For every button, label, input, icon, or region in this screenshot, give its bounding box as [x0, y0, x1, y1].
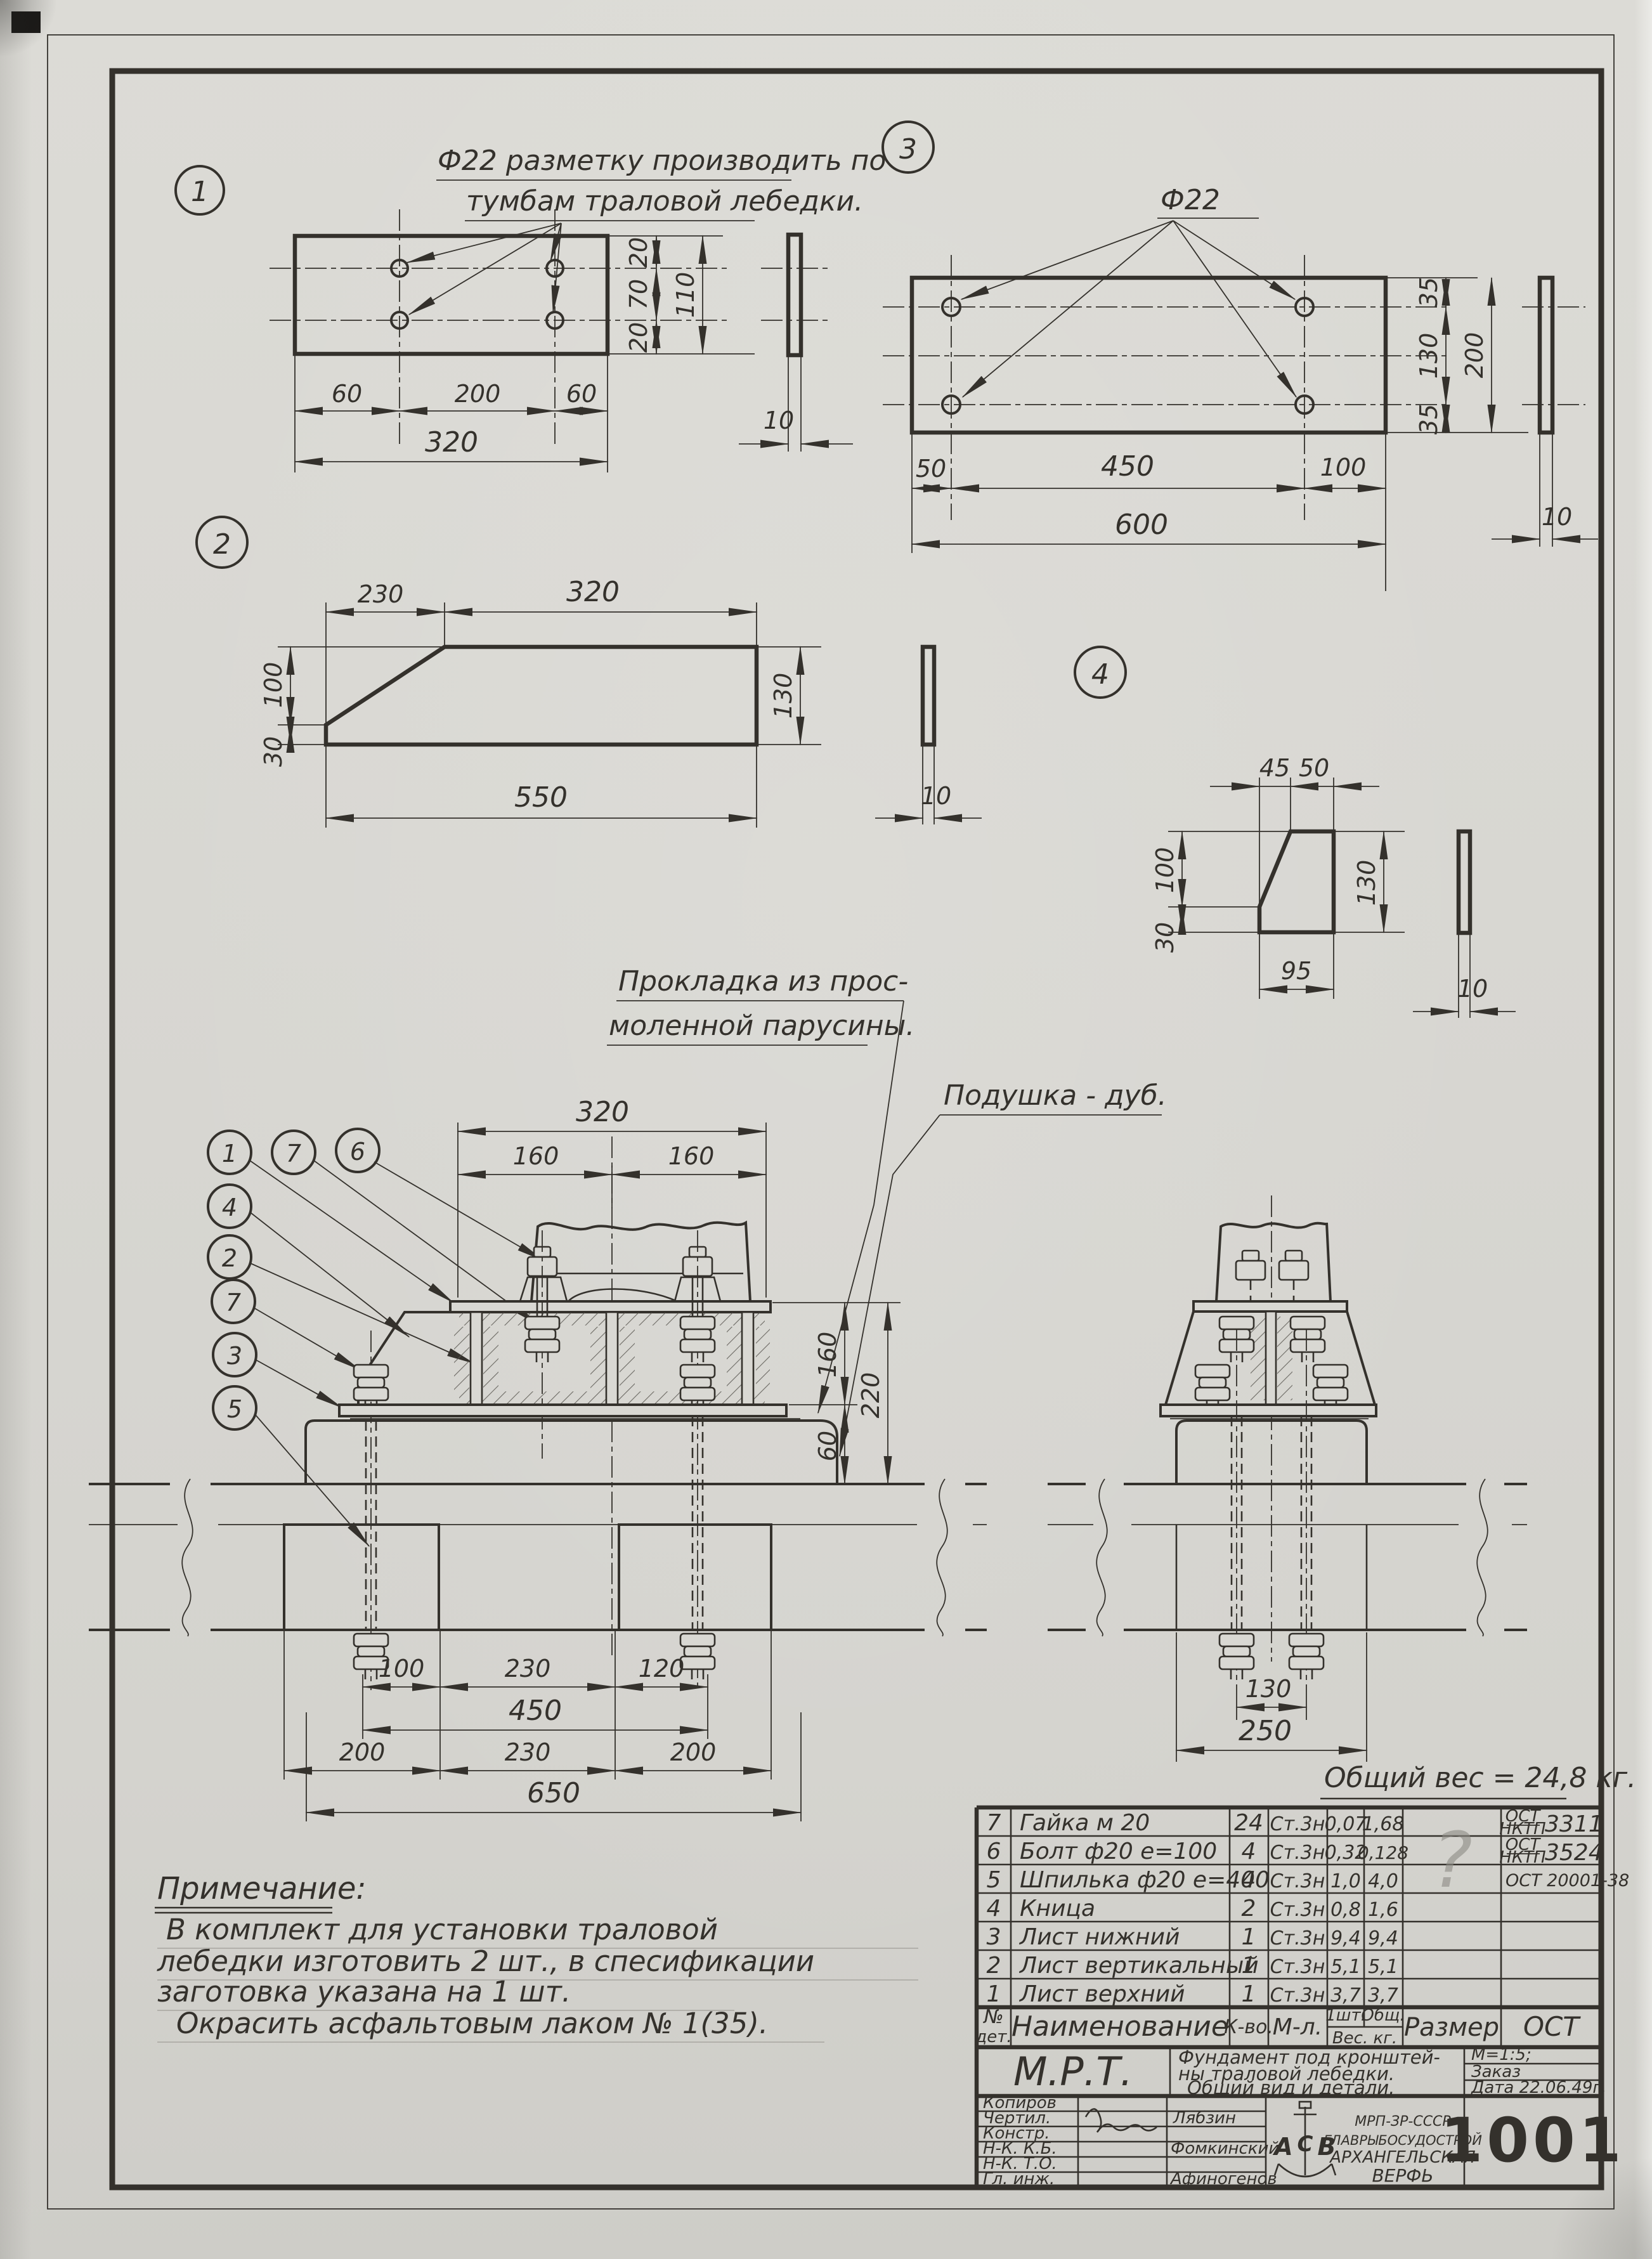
emblem-letter-s: С: [1298, 2132, 1313, 2157]
balloon-1: 1: [222, 1140, 237, 1168]
drawing-canvas: 1 Ф22 разметку производить по тумбам тра…: [0, 0, 1652, 2259]
cell-qty: 2: [1242, 1896, 1256, 1922]
dim-d2-t1: 230: [358, 580, 404, 608]
cell-w1: 5,1: [1330, 1956, 1361, 1978]
oak-cushion: [306, 1421, 837, 1484]
break-line-left: [182, 1479, 193, 1636]
dim-d1-total: 320: [425, 426, 478, 459]
cell-wt: 1,6: [1368, 1899, 1398, 1921]
cell-ost-single: ОСТ 20001-38: [1506, 1871, 1629, 1891]
side-deck: [1048, 1479, 1527, 1636]
table-row: 1 Лист верхний 1 Ст.3н 3,7 3,7: [987, 1981, 1398, 2007]
cushion-label-text: Подушка - дуб.: [944, 1079, 1167, 1112]
sig-name-chief: Афиногенов: [1169, 2170, 1277, 2189]
blueprint-sheet: 1 Ф22 разметку производить по тумбам тра…: [0, 0, 1652, 2259]
cell-wt: 1,68: [1362, 1813, 1405, 1835]
dim-d4-t2: 50: [1299, 754, 1329, 782]
dim-d4-l2: 30: [1151, 922, 1179, 953]
cell-no: 7: [987, 1810, 1001, 1836]
dim-d2-thk: 10: [921, 782, 951, 810]
dim-mv-r1a: 100: [379, 1655, 425, 1683]
dim-d2-r: 130: [769, 673, 797, 719]
notes-line2: лебедки изготовить 2 шт., в спесификации: [157, 1944, 814, 1978]
dim-mv-60: 60: [814, 1431, 842, 1461]
dim-d3-b2: 450: [1101, 450, 1154, 483]
table-row: 4 Кница 2 Ст.3н 0,8 1,6: [987, 1896, 1398, 1922]
cell-mat: Ст.3н: [1270, 1813, 1325, 1835]
header-name: Наименование: [1011, 2010, 1228, 2043]
dim-d3-b1: 50: [916, 455, 946, 483]
bottom-plate: [339, 1405, 786, 1416]
cell-mat: Ст.3н: [1270, 1842, 1325, 1864]
dim-d3-thk: 10: [1542, 503, 1572, 531]
table-row: 6 Болт ф20 е=100 4 Ст.3н 0,32 0,128 ОСТ …: [987, 1835, 1603, 1867]
dim-mv-right160: 160: [668, 1142, 715, 1170]
cell-wt: 3,7: [1368, 1984, 1398, 2007]
dim-sv-130: 130: [1246, 1675, 1292, 1703]
studs-and-nuts: [354, 1230, 715, 1690]
balloon-3: 3: [227, 1342, 242, 1370]
dim-d1-v1: 20: [625, 237, 653, 268]
dim-d1-vtotal: 110: [672, 272, 699, 318]
cell-wt: 0,128: [1358, 1842, 1408, 1863]
gasket-label-line2: моленной парусины.: [609, 1010, 914, 1042]
table-row: 2 Лист вертикальный 1 Ст.3н 5,1 5,1: [987, 1953, 1398, 1979]
side-winch-foot: [1216, 1223, 1330, 1301]
detail-3-side-view: [1540, 278, 1552, 433]
header-size: Размер: [1404, 2013, 1499, 2042]
dim-d4-t1: 45: [1259, 754, 1290, 782]
balloon-7a: 7: [286, 1140, 301, 1168]
dim-d3-v2: 130: [1415, 333, 1443, 379]
cell-qty: 4: [1242, 1867, 1256, 1893]
cell-name: Кница: [1020, 1896, 1095, 1922]
cell-ost-num: 3524: [1545, 1840, 1603, 1866]
drawing-title-line3: Общий вид и детали.: [1187, 2077, 1395, 2099]
dim-mv-220: 220: [857, 1372, 885, 1419]
cell-w1: 3,7: [1330, 1984, 1361, 2007]
side-web: [1251, 1312, 1292, 1405]
balloon-5: 5: [227, 1395, 242, 1423]
notes-block: Примечание: В комплект для установки тра…: [155, 1871, 918, 2042]
dim-d1-b1: 60: [332, 380, 362, 408]
cell-qty: 1: [1242, 1953, 1256, 1979]
cell-no: 5: [987, 1867, 1001, 1893]
scale-value: М=1:5;: [1471, 2045, 1532, 2064]
side-assembly-view: 130 250: [1048, 1195, 1527, 1762]
dim-d1-v2: 70: [625, 279, 653, 309]
cell-mat: Ст.3н: [1270, 1984, 1325, 2007]
dim-mv-r1b: 230: [505, 1655, 551, 1683]
side-top-plate: [1193, 1301, 1347, 1312]
dim-d1-thk: 10: [764, 407, 794, 434]
date-value: Дата 22.06.49г.: [1471, 2078, 1606, 2097]
wood-block-right: [619, 1525, 771, 1630]
detail-1-balloon-number: 1: [191, 176, 209, 208]
sig-name-drafted: Лябзин: [1173, 2109, 1236, 2128]
table-row: 7 Гайка м 20 24 Ст.3н 0,07 1,68 ОСТ НКТП…: [987, 1807, 1603, 1839]
header-w-label: Вес. кг.: [1332, 2029, 1397, 2048]
header-ost: ОСТ: [1523, 2011, 1581, 2042]
detail-1-note-line1: Ф22 разметку производить по: [438, 145, 886, 177]
detail-1-note-line2: тумбам траловой лебедки.: [466, 185, 863, 218]
detail-1-view: 1 Ф22 разметку производить по тумбам тра…: [176, 145, 886, 472]
dim-mv-r1c: 120: [639, 1655, 685, 1683]
sig-label-chief-eng: Гл. инж.: [983, 2170, 1055, 2189]
table-row: 3 Лист нижний 1 Ст.3н 9,4 9,4: [987, 1924, 1398, 1950]
sig-name-checked: Фомкинский: [1171, 2139, 1279, 2158]
dim-mv-left160: 160: [513, 1142, 559, 1170]
detail-3-balloon-number: 3: [899, 133, 917, 166]
deck-structure: [89, 1479, 987, 1636]
detail-2-plate-outline: [326, 647, 757, 745]
wood-block-left: [284, 1525, 439, 1630]
org-line1: МРП-ЗР-СССР: [1355, 2114, 1451, 2130]
cell-mat: Ст.3н: [1270, 1899, 1325, 1921]
detail-2-view: 2 230 320 100 30 130 550: [197, 517, 982, 828]
cell-mat: Ст.3н: [1270, 1927, 1325, 1950]
org-line4: ВЕРФЬ: [1372, 2165, 1433, 2186]
dim-mv-top: 320: [576, 1096, 629, 1128]
dim-d3-b3: 100: [1320, 453, 1367, 481]
dim-d4-total: 95: [1281, 957, 1311, 985]
balloon-4: 4: [222, 1194, 237, 1221]
balloon-6: 6: [350, 1138, 365, 1166]
dim-mv-r2: 450: [509, 1695, 562, 1727]
detail-2-balloon-number: 2: [213, 528, 231, 561]
table-row: 5 Шпилька ф20 е=400 4 Ст.3н 1,0 4,0 ОСТ …: [987, 1867, 1630, 1893]
photo-corner-mark: [11, 11, 41, 33]
dim-d4-r: 130: [1353, 860, 1381, 906]
series-mark: М.Р.Т.: [1013, 2048, 1133, 2095]
emblem-letter-a: А: [1272, 2133, 1292, 2161]
dim-d4-thk: 10: [1457, 975, 1488, 1003]
balloon-2: 2: [222, 1244, 237, 1272]
dim-mv-r3a: 200: [339, 1738, 386, 1766]
cell-name: Шпилька ф20 е=400: [1020, 1867, 1270, 1893]
detail-3-centerlines: [883, 255, 1585, 520]
header-qty: К-во.: [1224, 2016, 1273, 2038]
header-w-unit: 1шт.: [1325, 2006, 1366, 2025]
gasket-label-line1: Прокладка из прос-: [618, 965, 908, 998]
notes-line4: Окрасить асфальтовым лаком № 1(35).: [176, 2007, 768, 2040]
detail-3-view: 3 Ф22 50 450 100 600: [883, 122, 1598, 591]
detail-4-balloon-number: 4: [1091, 658, 1109, 691]
balloon-leaders: [250, 1161, 544, 1546]
dim-d1-b3: 60: [566, 380, 597, 408]
pencil-question-mark: ?: [1432, 1817, 1473, 1905]
copier-signature: [1086, 2109, 1157, 2132]
detail-1-plate-outline: [295, 236, 608, 354]
cell-qty: 4: [1242, 1839, 1256, 1865]
cell-wt: 4,0: [1368, 1870, 1398, 1892]
drawing-number: 1001: [1440, 2105, 1625, 2176]
cell-wt: 5,1: [1368, 1956, 1398, 1978]
notes-line1: В комплект для установки траловой: [166, 1913, 718, 1946]
cell-qty: 24: [1234, 1810, 1263, 1836]
dim-d2-total: 550: [514, 781, 568, 814]
winch-foot: [520, 1223, 750, 1301]
cell-no: 6: [987, 1839, 1001, 1865]
detail-4-view: 4 45 50 100 30 130 95: [1075, 647, 1516, 1018]
header-mat: М-л.: [1273, 2014, 1323, 2040]
cell-name: Болт ф20 е=100: [1020, 1839, 1217, 1865]
cushion-label: Подушка - дуб.: [840, 1079, 1167, 1456]
dim-sv-250: 250: [1239, 1715, 1292, 1747]
notes-heading: Примечание:: [157, 1871, 367, 1906]
side-bottom-plate: [1161, 1405, 1376, 1416]
top-plate: [450, 1301, 771, 1312]
cell-qty: 1: [1242, 1924, 1256, 1950]
dim-d1-v3: 20: [625, 322, 653, 353]
detail-3-hole-label: Ф22: [1161, 184, 1220, 216]
header-no2: дет.: [975, 2028, 1011, 2047]
balloon-7b: 7: [226, 1289, 241, 1317]
dim-d2-t2: 320: [566, 576, 620, 608]
cell-no: 2: [987, 1953, 1001, 1979]
cell-w1: 1,0: [1330, 1870, 1361, 1892]
cell-wt: 9,4: [1368, 1927, 1398, 1950]
cell-name: Лист нижний: [1018, 1924, 1180, 1950]
dim-d3-v1: 35: [1415, 277, 1443, 308]
dim-d3-v3: 35: [1415, 404, 1443, 434]
notes-line3: заготовка указана на 1 шт.: [157, 1975, 571, 2008]
cell-w1: 0,07: [1325, 1813, 1367, 1835]
header-w-total: Общ.: [1361, 2006, 1405, 2025]
cell-w1: 9,4: [1330, 1927, 1361, 1950]
break-line-right: [937, 1479, 947, 1636]
cell-no: 1: [987, 1981, 1001, 2007]
detail-2-side-view: [923, 647, 934, 745]
cell-no: 4: [987, 1896, 1001, 1922]
detail-4-plate-outline: [1259, 831, 1334, 932]
cell-ost-num: 3311: [1545, 1811, 1603, 1837]
dim-d1-b2: 200: [455, 380, 501, 408]
detail-4-side-view: [1459, 831, 1470, 933]
title-block: М.Р.Т. Фундамент под кронштей- ны тралов…: [977, 2045, 1625, 2189]
detail-3-plate-outline: [912, 278, 1386, 433]
header-no1: №: [982, 2006, 1003, 2028]
weight-note-text: Общий вес = 24,8 кг.: [1324, 1762, 1636, 1794]
cell-no: 3: [987, 1924, 1001, 1950]
detail-1-side-view: [788, 235, 801, 355]
weight-note: Общий вес = 24,8 кг.: [1320, 1762, 1636, 1799]
dim-mv-r3c: 200: [670, 1738, 717, 1766]
cell-qty: 1: [1242, 1981, 1256, 2007]
cell-w1: 0,8: [1330, 1899, 1361, 1921]
dim-d4-l1: 100: [1151, 847, 1179, 894]
dim-mv-r4: 650: [527, 1777, 580, 1809]
dim-d3-total: 600: [1115, 509, 1168, 541]
cell-mat: Ст.3н: [1270, 1870, 1325, 1892]
cell-name: Лист верхний: [1018, 1981, 1185, 2007]
cell-ost-bot: НКТП: [1499, 1848, 1545, 1867]
dim-d2-l1: 100: [259, 662, 287, 708]
cell-name: Лист вертикальный: [1018, 1953, 1259, 1979]
main-assembly-view: 1 7 6 4 2 7 3 5: [89, 1096, 987, 1821]
dim-mv-r3b: 230: [505, 1738, 551, 1766]
detail-1-holes: [391, 260, 563, 329]
table-header-row: № дет. Наименование К-во. М-л. 1шт. Общ.…: [975, 2006, 1581, 2048]
cell-name: Гайка м 20: [1020, 1810, 1150, 1836]
dim-d3-vtotal: 200: [1460, 332, 1488, 379]
dim-mv-160: 160: [814, 1332, 842, 1378]
cell-mat: Ст.3н: [1270, 1956, 1325, 1978]
dim-d2-l2: 30: [259, 736, 287, 767]
